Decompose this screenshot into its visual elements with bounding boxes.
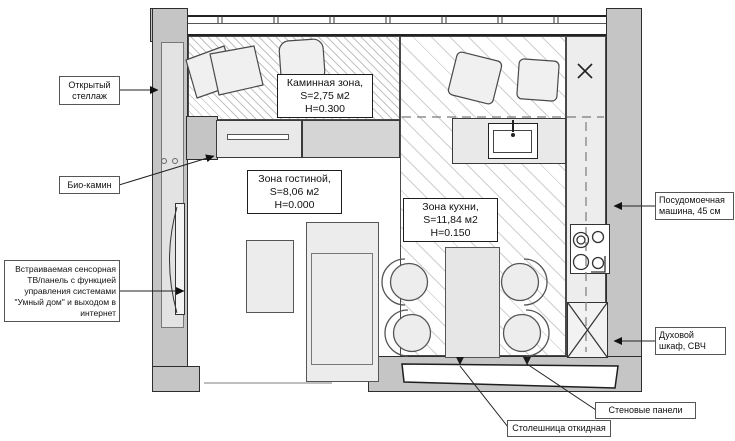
zone-kitchen-area: S=11,84 м2: [404, 214, 497, 227]
zone-kitchen-height: Н=0.150: [404, 227, 497, 240]
wall-bottom-left-foot: [152, 366, 200, 392]
sink: [488, 123, 538, 159]
callout-countertop: Столешница откидная: [507, 420, 611, 437]
ottoman: [246, 240, 294, 313]
oven-microwave: [567, 302, 608, 358]
zone-kitchen-name: Зона кухни,: [404, 201, 497, 214]
window-band: [188, 15, 606, 36]
zone-fireplace-height: Н=0.300: [278, 103, 372, 116]
top-cabinet: [302, 120, 400, 158]
zone-living-height: Н=0.000: [248, 199, 341, 212]
zone-label-fireplace: Каминная зона, S=2,75 м2 Н=0.300: [277, 74, 373, 118]
fireplace-surround-block: [186, 116, 218, 160]
bio-fireplace-unit: [216, 120, 302, 158]
zone-living-name: Зона гостиной,: [248, 173, 341, 186]
wall-right: [606, 8, 642, 392]
callout-tv-panel: Встраиваемая сенсорная ТВ/панель с функц…: [4, 260, 120, 322]
kitchen-table: [445, 247, 500, 358]
tv-panel: [175, 203, 185, 315]
floor-plan: Каминная зона, S=2,75 м2 Н=0.300 Зона го…: [0, 0, 735, 441]
callout-oven: Духовой шкаф, СВЧ: [655, 327, 726, 355]
callout-wall-panels: Стеновые панели: [595, 402, 696, 419]
zone-fireplace-area: S=2,75 м2: [278, 90, 372, 103]
bio-fireplace-burner-slot: [227, 134, 289, 140]
callout-dishwasher: Посудомоечная машина, 45 см: [655, 192, 734, 220]
callout-bio-fireplace: Био-камин: [59, 176, 120, 194]
sofa-seat: [311, 253, 373, 365]
sofa: [306, 222, 379, 382]
zone-label-kitchen: Зона кухни, S=11,84 м2 Н=0.150: [403, 198, 498, 242]
zone-label-living: Зона гостиной, S=8,06 м2 Н=0.000: [247, 170, 342, 214]
zone-living-area: S=8,06 м2: [248, 186, 341, 199]
wall-bottom: [368, 356, 642, 392]
callout-open-shelf: Открытый стеллаж: [59, 76, 120, 105]
zone-fireplace-name: Каминная зона,: [278, 77, 372, 90]
cooktop: [570, 224, 610, 274]
window-inner-line: [188, 23, 606, 24]
sink-basin: [493, 130, 532, 153]
